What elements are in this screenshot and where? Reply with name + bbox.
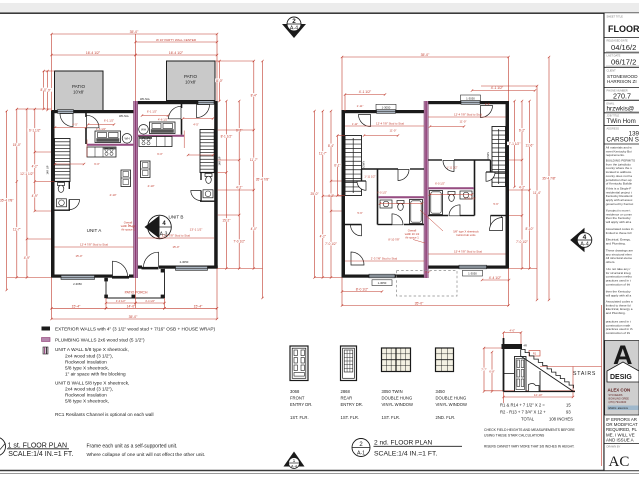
svg-text:12'-4 7/8" Stud to Stud: 12'-4 7/8" Stud to Stud	[376, 122, 404, 126]
svg-text:8'-1 1/2": 8'-1 1/2"	[221, 135, 233, 139]
svg-text:15'-4": 15'-4"	[194, 304, 203, 308]
svg-text:16'-4 1/2": 16'-4 1/2"	[169, 51, 184, 55]
svg-text:3068: 3068	[290, 389, 300, 394]
svg-text:1ST. FLR.: 1ST. FLR.	[382, 415, 401, 420]
svg-text:7'-0 1/2": 7'-0 1/2"	[233, 240, 245, 244]
svg-text:11'-4": 11'-4"	[533, 191, 541, 195]
svg-text:270.7: 270.7	[613, 92, 631, 101]
svg-text:will apply with all a: will apply with all a	[606, 220, 632, 224]
svg-text:TOTAL: TOTAL	[521, 417, 535, 422]
svg-text:Rockwool Insulation: Rockwool Insulation	[65, 360, 107, 365]
svg-text:UNIT B WALL 5/8 type X sheetro: UNIT B WALL 5/8 type X sheetrock,	[55, 381, 129, 386]
svg-text:2ND. FLR.: 2ND. FLR.	[436, 415, 456, 420]
svg-text:15'-4": 15'-4"	[72, 304, 81, 308]
svg-text:ALEX CON: ALEX CON	[608, 388, 631, 393]
svg-text:UNIT A WALL 5/8 type X sheetro: UNIT A WALL 5/8 type X sheetrock,	[55, 347, 129, 352]
svg-text:35'-0": 35'-0"	[421, 53, 430, 57]
svg-text:8'-10 7/8": 8'-10 7/8"	[388, 238, 399, 242]
svg-text:A-4: A-4	[290, 25, 298, 31]
svg-text:4'-5": 4'-5"	[72, 123, 78, 127]
svg-text:WD-SGL: WD-SGL	[140, 98, 151, 101]
svg-text:and Plumbing.: and Plumbing.	[606, 241, 626, 245]
svg-text:SHEET TITLE: SHEET TITLE	[607, 15, 624, 19]
svg-text:UNIT A: UNIT A	[87, 228, 103, 233]
svg-text:10'x8': 10'x8'	[185, 80, 196, 85]
svg-text:HARRISON ZI: HARRISON ZI	[607, 79, 637, 84]
svg-text:A-4: A-4	[580, 242, 589, 248]
svg-text:1'-11 1/2": 1'-11 1/2"	[446, 166, 457, 170]
svg-text:15'-0": 15'-0"	[13, 143, 21, 147]
svg-text:10'x8': 10'x8'	[73, 90, 84, 95]
svg-text:4'-0": 4'-0"	[251, 227, 257, 231]
svg-text:construction of thi: construction of thi	[606, 331, 631, 335]
svg-text:governed by Kentuc: governed by Kentuc	[606, 202, 634, 206]
svg-text:ENTRY DR.: ENTRY DR.	[290, 402, 312, 407]
svg-text:5/8 type X sheetrock,: 5/8 type X sheetrock,	[65, 366, 109, 371]
svg-text:35'-0": 35'-0"	[129, 315, 138, 319]
svg-text:1'-2": 1'-2"	[425, 270, 430, 274]
svg-text:width 20 1/2: width 20 1/2	[405, 232, 420, 236]
svg-text:14R UP: 14R UP	[46, 165, 50, 174]
svg-text:12'-10": 12'-10"	[534, 393, 543, 397]
svg-text:STONEWOOD: STONEWOOD	[607, 74, 638, 79]
svg-text:4'-2": 4'-2"	[519, 186, 525, 190]
svg-text:15: 15	[566, 403, 571, 408]
svg-text:4'-4 1/2": 4'-4 1/2"	[145, 299, 155, 303]
svg-text:CHECK FIELD HEIGHTS AND MEASUR: CHECK FIELD HEIGHTS AND MEASUREMENTS BEF…	[484, 428, 576, 432]
svg-text:5'-6": 5'-6"	[493, 202, 498, 206]
svg-text:6'-1": 6'-1"	[334, 163, 340, 167]
svg-text:93: 93	[566, 410, 571, 415]
svg-text:6'-0": 6'-0"	[157, 152, 163, 156]
svg-text:PATIO: PATIO	[184, 74, 198, 79]
svg-text:11'-7": 11'-7"	[250, 158, 258, 162]
svg-text:11'-7": 11'-7"	[319, 151, 327, 155]
svg-text:15'-2": 15'-2"	[222, 218, 230, 222]
svg-text:4'-0 1/2": 4'-0 1/2"	[116, 299, 126, 303]
svg-text:8'-10 7/8": 8'-10 7/8"	[464, 197, 475, 201]
svg-text:15'-0": 15'-0"	[75, 254, 82, 258]
svg-text:USING THESE STAIR CALCULATIONS: USING THESE STAIR CALCULATIONS	[484, 434, 545, 438]
svg-text:DOWN: DOWN	[486, 152, 490, 160]
svg-text:108 INCHES: 108 INCHES	[549, 417, 573, 422]
svg-text:14R UP: 14R UP	[217, 156, 221, 165]
svg-text:W 16' PARTY WALL CENTER: W 16' PARTY WALL CENTER	[156, 38, 197, 42]
svg-text:Rockwool Insulation: Rockwool Insulation	[65, 393, 107, 398]
svg-text:04/16/2: 04/16/2	[611, 43, 636, 52]
svg-text:7'-7": 7'-7"	[481, 368, 487, 372]
svg-text:6'-0 1/2": 6'-0 1/2"	[377, 191, 387, 195]
svg-text:4'-10": 4'-10"	[109, 193, 116, 197]
svg-text:R2 - R13 + 7 3/4" X 12 +: R2 - R13 + 7 3/4" X 12 +	[500, 410, 546, 415]
svg-text:4'-6 1/2": 4'-6 1/2"	[158, 118, 168, 122]
svg-text:12'-4 7/8" Stud to Stud: 12'-4 7/8" Stud to Stud	[80, 243, 108, 247]
svg-text:and Plumbing.: and Plumbing.	[606, 311, 626, 315]
svg-text:5/8 type X sheetrock,: 5/8 type X sheetrock,	[65, 399, 109, 404]
svg-text:4'-2": 4'-2"	[32, 165, 38, 169]
svg-text:2868: 2868	[341, 389, 351, 394]
svg-text:1'-11 1/2": 1'-11 1/2"	[364, 175, 375, 179]
svg-text:4'-4 1/2": 4'-4 1/2"	[489, 276, 502, 280]
svg-text:11'-0": 11'-0"	[390, 129, 397, 133]
svg-text:8'-10": 8'-10"	[525, 227, 533, 231]
svg-text:8'-0 1/2": 8'-0 1/2"	[356, 288, 369, 292]
svg-text:1-3050: 1-3050	[466, 96, 475, 100]
svg-text:WH: WH	[141, 128, 146, 132]
svg-text:EMAIL: alexcons: EMAIL: alexcons	[609, 406, 629, 410]
svg-text:R1 & R14 + 7 1/2" X 2 =: R1 & R14 + 7 1/2" X 2 =	[500, 403, 545, 408]
svg-text:12'-4 7/8" Stud to Stud: 12'-4 7/8" Stud to Stud	[454, 113, 482, 117]
svg-text:Air space 1: Air space 1	[405, 236, 419, 240]
svg-text:AND ISSUE A: AND ISSUE A	[606, 437, 634, 442]
svg-text:1-3050: 1-3050	[382, 106, 391, 110]
svg-text:6'-1 1/2": 6'-1 1/2"	[29, 128, 41, 132]
svg-text:RC1 Resilants Channel is optio: RC1 Resilants Channel is optional on eac…	[55, 412, 154, 417]
svg-text:2x4 wood stud (3 1/2"),: 2x4 wood stud (3 1/2"),	[65, 354, 113, 359]
svg-text:CLIENT: CLIENT	[607, 68, 617, 72]
svg-text:4'-9": 4'-9"	[32, 194, 38, 198]
svg-text:7'-0 1/2": 7'-0 1/2"	[325, 242, 337, 246]
svg-text:WH: WH	[125, 137, 130, 141]
svg-text:Overall: Overall	[124, 221, 133, 225]
svg-text:TWin Hom: TWin Hom	[607, 118, 636, 125]
svg-text:8'-0": 8'-0"	[41, 88, 47, 92]
svg-text:13'-1 1/2": 13'-1 1/2"	[190, 228, 203, 232]
svg-text:2 nd. FLOOR PLAN: 2 nd. FLOOR PLAN	[374, 440, 433, 447]
svg-text:VINYL WINDOW: VINYL WINDOW	[436, 402, 468, 407]
svg-text:UNIT B: UNIT B	[169, 215, 184, 220]
svg-text:8'-4": 8'-4"	[328, 144, 334, 148]
svg-text:15'-4 7/8" Stud to Stud: 15'-4 7/8" Stud to Stud	[454, 250, 482, 254]
svg-text:A-1: A-1	[357, 451, 365, 457]
svg-text:35'-0": 35'-0"	[415, 302, 424, 306]
svg-text:7'-1 1/2": 7'-1 1/2"	[509, 142, 521, 146]
svg-text:2-3050: 2-3050	[73, 282, 82, 286]
svg-text:35'-4 7/8": 35'-4 7/8"	[0, 198, 13, 202]
svg-text:FLOOR: FLOOR	[608, 24, 639, 34]
svg-text:construction of thi: construction of thi	[606, 282, 631, 286]
svg-text:JOB TITLE: JOB TITLE	[607, 114, 620, 118]
svg-text:11'-7": 11'-7"	[13, 227, 21, 231]
svg-text:DOUBLE HUNG: DOUBLE HUNG	[436, 396, 467, 401]
svg-text:4: 4	[583, 234, 587, 241]
svg-text:limited to these foll: limited to these foll	[606, 231, 632, 235]
svg-text:PATIO: PATIO	[72, 84, 86, 89]
svg-text:RISERS CANNOT VARY MORE THAT 3: RISERS CANNOT VARY MORE THAT 3/8 INCHES …	[484, 445, 575, 449]
svg-text:PLUMBING WALLS 2x6 wood stud (: PLUMBING WALLS 2x6 wood stud (5 1/2")	[55, 338, 145, 343]
svg-text:4'-0": 4'-0"	[509, 329, 515, 333]
svg-text:1'-11": 1'-11"	[357, 104, 364, 108]
svg-text:1ST. FLR.: 1ST. FLR.	[341, 415, 360, 420]
svg-text:1 st. FLOOR PLAN: 1 st. FLOOR PLAN	[8, 442, 68, 449]
svg-text:6'-8": 6'-8"	[489, 370, 495, 374]
svg-text:REAR: REAR	[341, 396, 353, 401]
svg-text:15'-0": 15'-0"	[172, 245, 179, 249]
svg-text:4'-10": 4'-10"	[147, 184, 154, 188]
svg-text:4R: 4R	[524, 344, 527, 348]
svg-text:4'-2": 4'-2"	[320, 235, 326, 239]
svg-text:CARSON S: CARSON S	[607, 137, 639, 144]
svg-text:6'-2": 6'-2"	[236, 128, 242, 132]
svg-text:6'-1 1/2": 6'-1 1/2"	[104, 119, 114, 123]
svg-text:Air space 1: Air space 1	[121, 228, 135, 232]
svg-text:8'-0": 8'-0"	[216, 79, 224, 83]
svg-text:6'-0 1/2": 6'-0 1/2"	[435, 182, 445, 186]
svg-text:DOUBLE HUNG: DOUBLE HUNG	[382, 396, 413, 401]
svg-text:4'-1 1/2": 4'-1 1/2"	[359, 90, 372, 94]
svg-text:Where collapse of one unit wil: Where collapse of one unit will not effe…	[87, 452, 206, 458]
svg-text:R1: R1	[533, 352, 537, 356]
svg-text:2'-3 7/8" Stud to Stud: 2'-3 7/8" Stud to Stud	[371, 257, 398, 261]
svg-text:others.: others.	[606, 260, 616, 264]
svg-text:2x4 wood stud (3 1/2"),: 2x4 wood stud (3 1/2"),	[65, 387, 113, 392]
svg-text:1ST. FLR.: 1ST. FLR.	[290, 415, 309, 420]
svg-text:11'-6": 11'-6"	[526, 143, 534, 147]
svg-text:7'-0 1/2": 7'-0 1/2"	[516, 240, 528, 244]
svg-text:35'-0": 35'-0"	[130, 30, 139, 34]
svg-text:14'-0": 14'-0"	[127, 304, 136, 308]
svg-text:behind tub units: behind tub units	[457, 233, 477, 237]
svg-text:1'-11": 1'-11"	[352, 123, 358, 126]
svg-text:1-3050: 1-3050	[378, 281, 387, 285]
svg-text:VINYL WINDOW: VINYL WINDOW	[382, 402, 414, 407]
svg-text:DESIG: DESIG	[610, 374, 632, 381]
svg-text:Overall: Overall	[408, 229, 417, 233]
svg-text:PATIO PORCH: PATIO PORCH	[125, 291, 148, 295]
svg-text:6'-2": 6'-2"	[519, 128, 525, 132]
svg-text:(270) 794-6400: (270) 794-6400	[609, 400, 627, 404]
svg-text:35'-4 7/8": 35'-4 7/8"	[542, 176, 555, 180]
svg-text:12'-1 1/2": 12'-1 1/2"	[20, 172, 33, 176]
svg-text:2-3050: 2-3050	[180, 260, 189, 264]
svg-text:AC: AC	[609, 454, 630, 470]
svg-text:5'-6": 5'-6"	[357, 211, 362, 215]
svg-text:16'-4 1/2": 16'-4 1/2"	[86, 51, 101, 55]
svg-text:3450: 3450	[436, 389, 446, 394]
svg-text:Frame each unit as a self-supp: Frame each unit as a self-supported unit…	[87, 443, 178, 449]
svg-text:1" air space with fire blockin: 1" air space with fire blocking	[65, 372, 126, 377]
svg-text:35'-4 7/8": 35'-4 7/8"	[256, 177, 269, 181]
svg-text:6'-0": 6'-0"	[94, 162, 100, 166]
svg-text:4'-1 1/2": 4'-1 1/2"	[491, 86, 504, 90]
svg-text:4'-5": 4'-5"	[193, 123, 199, 127]
svg-text:will apply with all a: will apply with all a	[606, 293, 632, 297]
svg-text:2: 2	[292, 18, 296, 25]
svg-text:requirements.: requirements.	[606, 153, 625, 157]
svg-text:STAIRS: STAIRS	[573, 371, 596, 377]
svg-text:12'-4 7/8" Stud to Stud: 12'-4 7/8" Stud to Stud	[162, 234, 190, 238]
svg-text:3050 TWIN: 3050 TWIN	[382, 389, 403, 394]
svg-text:8'-4": 8'-4"	[251, 93, 257, 97]
svg-text:of Kentucky Buildin: of Kentucky Buildin	[606, 182, 633, 186]
svg-text:RELEASED DATE: RELEASED DATE	[607, 39, 629, 43]
svg-text:4'-2": 4'-2"	[236, 185, 242, 189]
svg-text:DRAWN BY: DRAWN BY	[607, 445, 621, 449]
svg-text:1-3050: 1-3050	[468, 272, 477, 276]
svg-text:SCALE:1/4 IN.=1 FT.: SCALE:1/4 IN.=1 FT.	[8, 451, 73, 458]
svg-text:ADDRESS: ADDRESS	[607, 126, 620, 130]
svg-text:2'-0": 2'-0"	[485, 102, 490, 106]
svg-text:ENTRY DR.: ENTRY DR.	[341, 402, 363, 407]
svg-text:973 DEERS: 973 DEERS	[609, 393, 623, 397]
svg-text:DOWN: DOWN	[362, 161, 366, 169]
svg-text:A-4: A-4	[291, 464, 297, 468]
svg-text:WD-SGL: WD-SGL	[119, 115, 130, 118]
svg-text:25'-0": 25'-0"	[310, 192, 318, 196]
svg-text:5/8" type X sheetrock: 5/8" type X sheetrock	[453, 230, 479, 234]
svg-text:11'-0": 11'-0"	[460, 120, 467, 124]
svg-text:EXTERIOR WALLS with 4" (3 1/2": EXTERIOR WALLS with 4" (3 1/2" wood stud…	[55, 327, 216, 332]
svg-text:06/17/2: 06/17/2	[611, 58, 636, 67]
svg-text:SCALE:1/4 IN.=1 FT.: SCALE:1/4 IN.=1 FT.	[374, 450, 437, 457]
svg-text:FRONT: FRONT	[290, 396, 305, 401]
svg-text:6'-1 1/2": 6'-1 1/2"	[147, 110, 157, 114]
svg-text:4'-9": 4'-9"	[24, 256, 30, 260]
svg-text:BOWLING GREE: BOWLING GREE	[609, 396, 630, 400]
svg-text:4'-6 1/2": 4'-6 1/2"	[96, 127, 106, 131]
